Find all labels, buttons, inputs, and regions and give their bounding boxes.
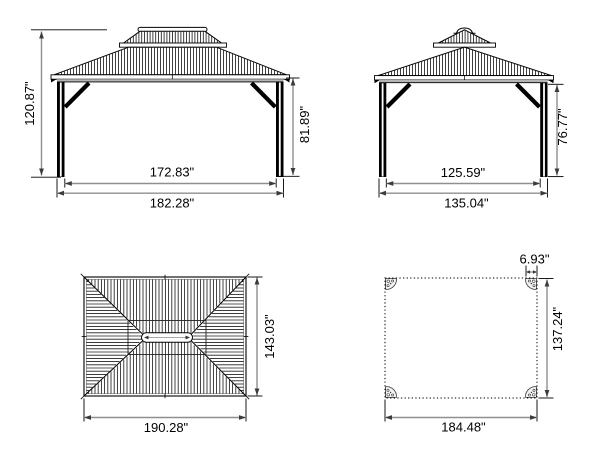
screw-hole bbox=[390, 392, 391, 393]
screw-hole bbox=[387, 389, 389, 391]
dim-label-footprint-width: 184.48" bbox=[441, 420, 486, 435]
screw-hole bbox=[531, 392, 532, 393]
screw-hole bbox=[533, 285, 535, 287]
dim-label-side-inner-depth: 125.59" bbox=[441, 165, 486, 180]
side-eave-band bbox=[375, 76, 554, 80]
side-upper-roof-rim bbox=[434, 43, 496, 47]
screw-hole bbox=[528, 394, 530, 396]
screw-hole bbox=[387, 394, 390, 397]
front-eave-band bbox=[51, 75, 290, 79]
screw-hole bbox=[390, 283, 391, 284]
screw-hole bbox=[533, 394, 536, 397]
screw-hole bbox=[531, 283, 532, 284]
drawing-sheet: 120.87" 81.89" 172.83" 182.28" 76.77" 12… bbox=[0, 0, 600, 450]
dim-label-roof-depth: 143.03" bbox=[262, 314, 277, 359]
screw-hole bbox=[392, 394, 394, 396]
screw-hole bbox=[387, 285, 389, 287]
screw-hole bbox=[387, 280, 390, 283]
dim-label-roof-width: 190.28" bbox=[144, 420, 189, 435]
dim-label-side-clearance-height: 76.77" bbox=[555, 108, 570, 146]
dim-label-side-outer-depth: 135.04" bbox=[444, 196, 489, 211]
front-upper-roof-rim bbox=[120, 43, 227, 47]
dim-label-post-width: 6.93" bbox=[520, 252, 550, 267]
dim-label-overall-height: 120.87" bbox=[22, 81, 37, 126]
screw-hole bbox=[533, 280, 536, 283]
dim-label-front-inner-width: 172.83" bbox=[150, 165, 195, 180]
screw-hole bbox=[533, 389, 535, 391]
screw-hole bbox=[528, 280, 530, 282]
dim-label-front-outer-width: 182.28" bbox=[150, 196, 195, 211]
screw-hole bbox=[392, 280, 394, 282]
dim-label-front-clearance-height: 81.89" bbox=[297, 106, 312, 144]
dim-label-footprint-depth: 137.24" bbox=[550, 306, 565, 351]
front-upper-roof-ribs bbox=[125, 31, 220, 43]
